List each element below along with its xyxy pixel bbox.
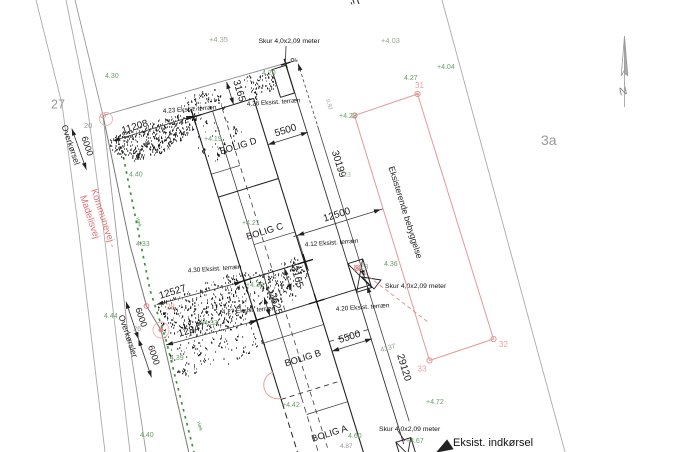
svg-text:33: 33 — [418, 365, 427, 374]
svg-text:23: 23 — [343, 172, 351, 179]
svg-text:+4.19: +4.19 — [204, 136, 222, 143]
svg-text:4.87: 4.87 — [340, 443, 353, 450]
svg-text:+4.21: +4.21 — [242, 220, 260, 227]
svg-text:+4.04: +4.04 — [437, 64, 455, 71]
svg-text:+4.28: +4.28 — [339, 113, 357, 120]
svg-text:4.44: 4.44 — [104, 313, 118, 320]
svg-text:+4.42: +4.42 — [282, 402, 300, 409]
svg-text:26: 26 — [133, 324, 141, 333]
svg-text:+4.72: +4.72 — [426, 399, 444, 406]
svg-text:4.40: 4.40 — [129, 172, 143, 179]
svg-text:4.40: 4.40 — [140, 432, 154, 439]
svg-text:32: 32 — [499, 340, 508, 349]
svg-text:4.60: 4.60 — [348, 433, 362, 440]
svg-text:31: 31 — [415, 81, 424, 90]
svg-text:4.30: 4.30 — [105, 73, 119, 80]
svg-text:23: 23 — [360, 262, 368, 271]
svg-text:Skur 4,0x2,09 meter: Skur 4,0x2,09 meter — [379, 426, 441, 433]
svg-text:4.33: 4.33 — [136, 241, 150, 248]
svg-text:3a: 3a — [541, 132, 557, 148]
svg-text:Skur 4,0x2,09 meter: Skur 4,0x2,09 meter — [385, 283, 447, 290]
svg-text:4.27: 4.27 — [404, 75, 418, 82]
svg-text:+4.67: +4.67 — [406, 438, 424, 445]
svg-text:27: 27 — [51, 98, 65, 112]
svg-text:4.39: 4.39 — [170, 355, 184, 362]
svg-text:Skur 4,0x2,09 meter: Skur 4,0x2,09 meter — [259, 38, 321, 45]
svg-text:28: 28 — [166, 303, 175, 312]
svg-text:Eksist. indkørsel: Eksist. indkørsel — [453, 437, 533, 449]
svg-text:+4.33: +4.33 — [200, 320, 218, 327]
svg-text:+4.03: +4.03 — [381, 36, 400, 45]
svg-text:+4.30: +4.30 — [246, 282, 264, 289]
svg-text:4.36: 4.36 — [384, 261, 398, 268]
svg-text:20: 20 — [84, 121, 92, 130]
svg-text:+4.35: +4.35 — [209, 35, 228, 44]
svg-text:4.20: 4.20 — [262, 70, 276, 77]
